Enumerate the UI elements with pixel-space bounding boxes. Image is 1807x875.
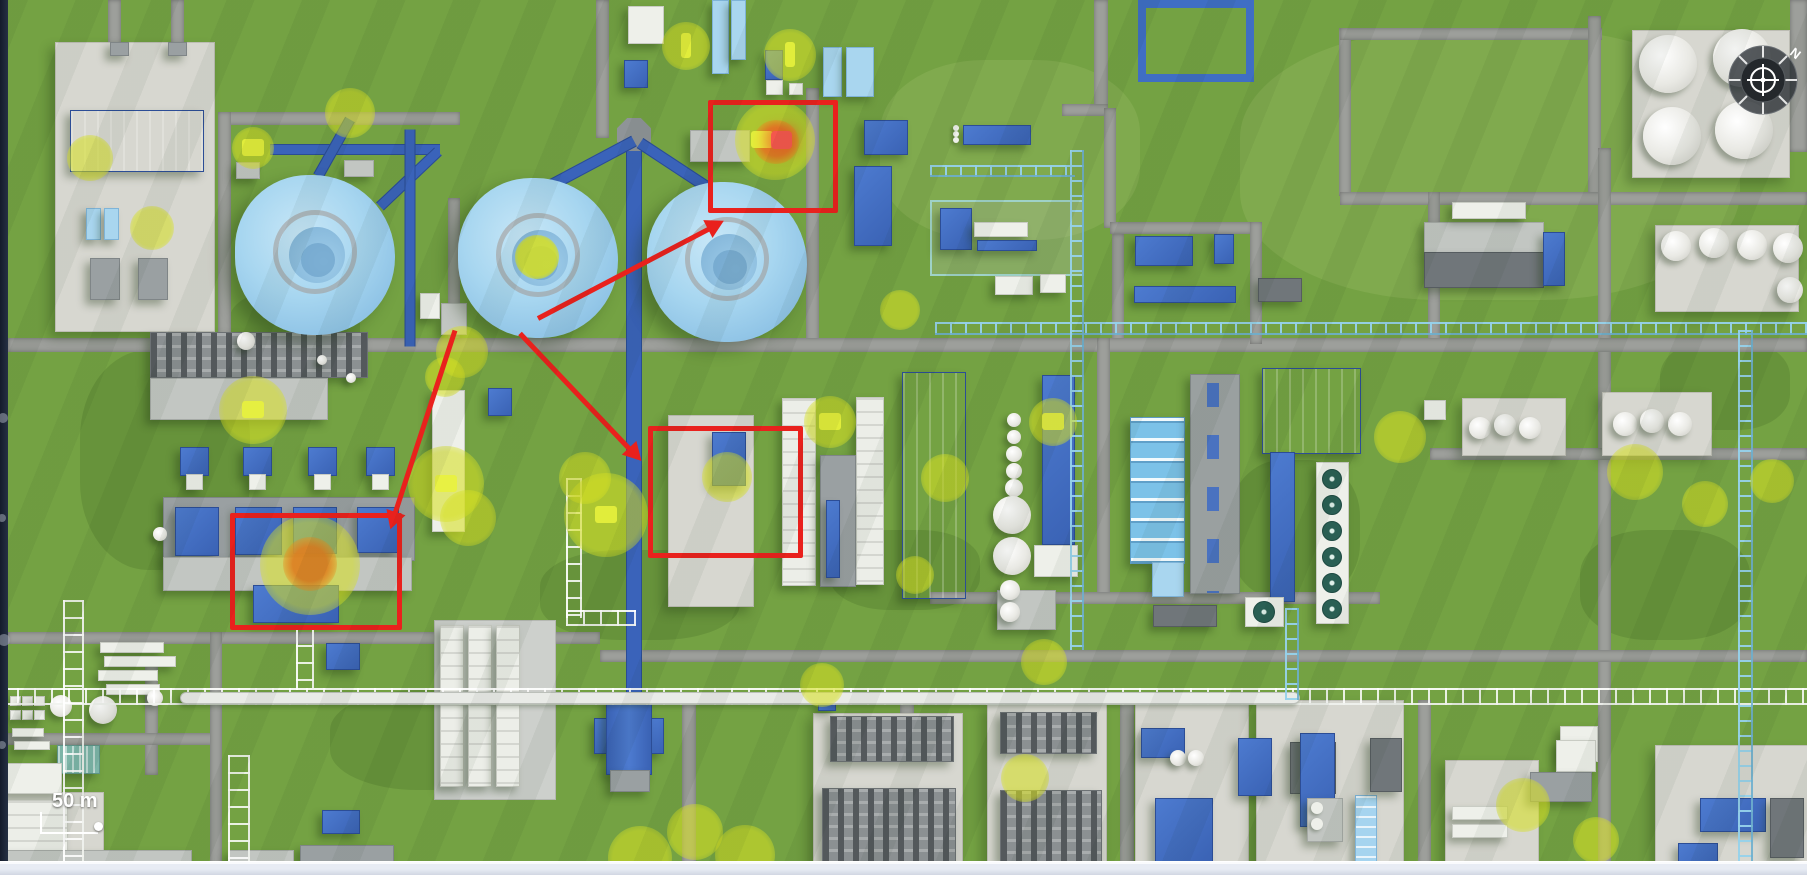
panel-edge-dot xyxy=(0,741,6,749)
compass-rose-icon: N xyxy=(1727,40,1803,116)
scale-bar-endcap xyxy=(94,822,103,831)
scale-bar-line xyxy=(40,812,98,834)
scale-bar: 50 m xyxy=(36,790,126,838)
left-panel-edge xyxy=(0,0,8,875)
panel-edge-dot xyxy=(0,413,8,423)
panel-edge-dot xyxy=(0,514,6,522)
bottom-window-bar xyxy=(0,861,1807,875)
terrain-shadow-texture xyxy=(0,0,1807,875)
scale-bar-label: 50 m xyxy=(52,790,98,813)
compass[interactable]: N xyxy=(1727,40,1803,116)
plant-map-view[interactable]: N 50 m xyxy=(0,0,1807,875)
